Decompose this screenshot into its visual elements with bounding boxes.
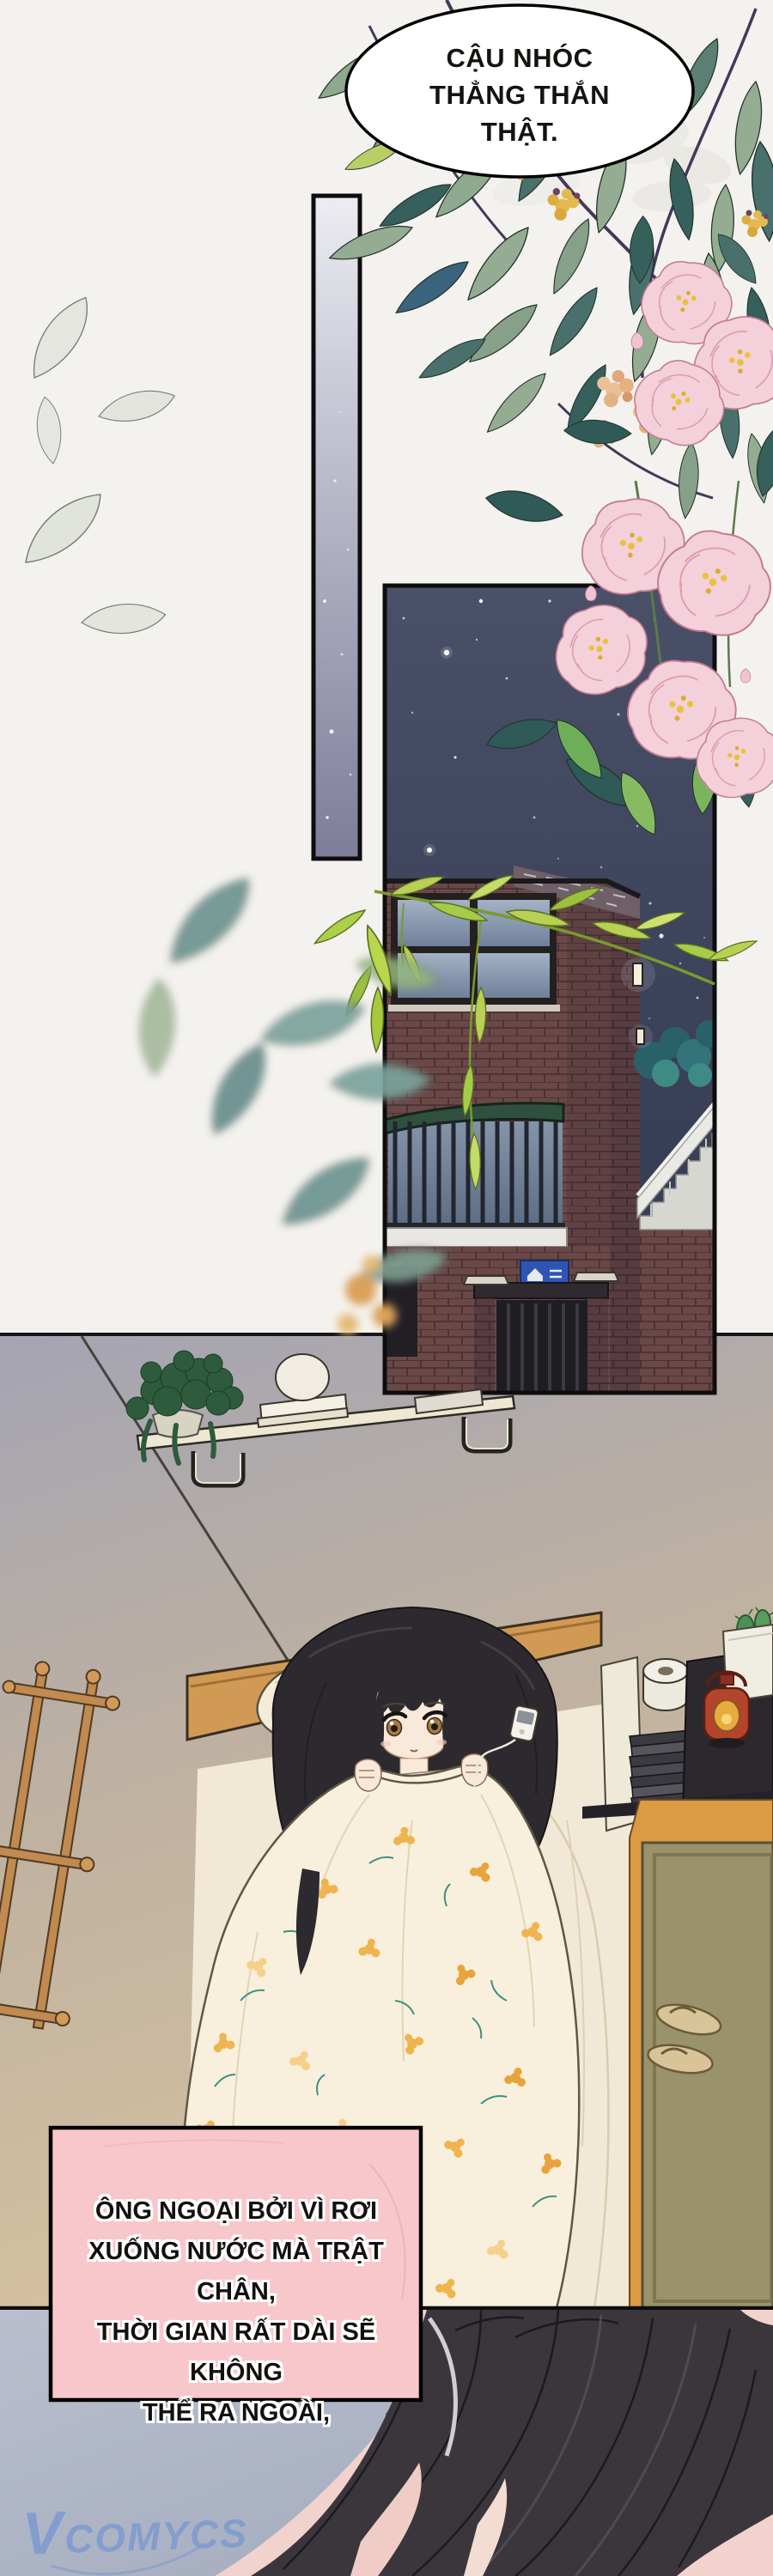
caption-line: THỜI GIAN RẤT DÀI SẼ KHÔNG	[60, 2312, 412, 2393]
caption-line: THỂ RA NGOÀI,	[60, 2393, 412, 2433]
floor	[630, 1800, 773, 2308]
caption-text: ÔNG NGOẠI BỞI VÌ RƠI XUỐNG NƯỚC MÀ TRẬT …	[60, 2191, 412, 2433]
speech-bubble-text: CẬU NHÓC THẲNG THẮN THẬT.	[391, 39, 648, 150]
comic-page: CẬU NHÓC THẲNG THẮN THẬT. ÔNG NGOẠI BỞI …	[0, 0, 773, 2576]
bubble-line: THẲNG THẮN	[391, 76, 648, 113]
toilet-paper-roll	[643, 1659, 688, 1710]
floor-mat	[642, 1843, 773, 2308]
comic-art	[0, 0, 773, 2576]
bubble-line: THẬT.	[391, 113, 648, 150]
caption-line: ÔNG NGOẠI BỞI VÌ RƠI	[60, 2191, 412, 2232]
bubble-line: CẬU NHÓC	[391, 39, 648, 76]
decor-egg	[276, 1354, 329, 1400]
caption-line: XUỐNG NƯỚC MÀ TRẬT CHÂN,	[60, 2232, 412, 2312]
watermark: VCOMYCS	[21, 2491, 265, 2568]
star-strip-panel	[313, 196, 360, 859]
